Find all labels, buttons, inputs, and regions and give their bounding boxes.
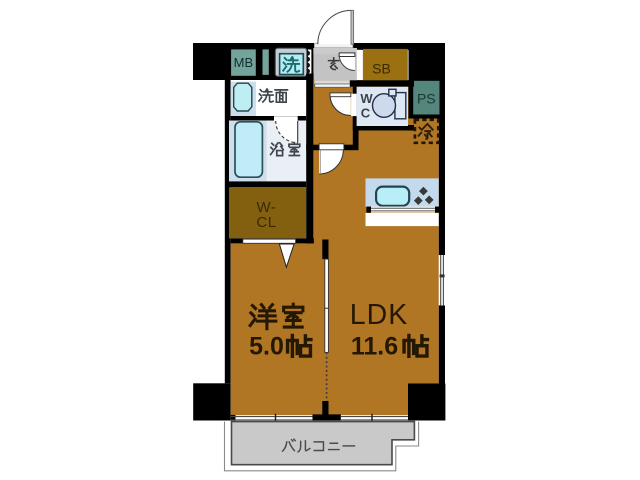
svg-text:LDK: LDK xyxy=(350,299,408,331)
svg-text:5.0: 5.0 xyxy=(249,333,284,361)
svg-text:W: W xyxy=(360,91,373,106)
svg-text:C: C xyxy=(361,106,371,121)
svg-text:11.6: 11.6 xyxy=(351,333,398,361)
svg-text:SB: SB xyxy=(372,61,391,77)
svg-text:PS: PS xyxy=(417,91,436,107)
svg-text:MB: MB xyxy=(234,55,254,70)
svg-text:CL: CL xyxy=(256,214,276,231)
